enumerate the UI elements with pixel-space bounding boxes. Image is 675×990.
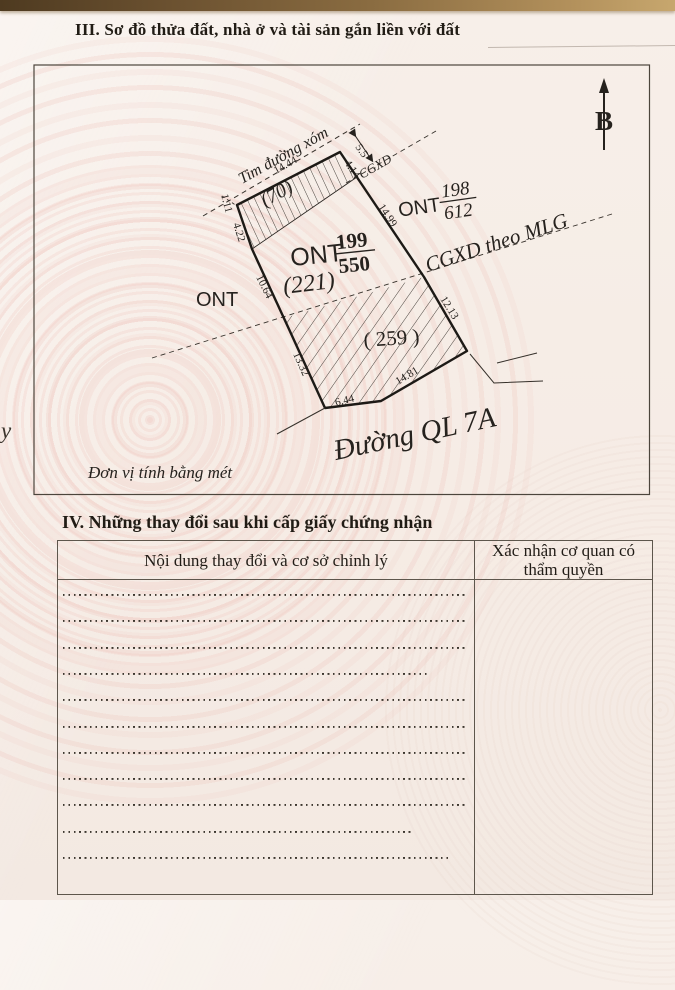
meas-corner: 1.11 (218, 193, 234, 214)
dotted-line (63, 730, 468, 756)
dotted-line (63, 757, 468, 783)
area-259-label: ( 259 ) (363, 324, 421, 352)
meas-right-upper: 14.99 (376, 202, 400, 230)
main-parcel-note: (221) (282, 268, 337, 300)
road-name-label: Đường QL 7A (330, 401, 499, 467)
page-edge-line (488, 45, 675, 48)
photo-desk-edge (0, 0, 675, 11)
dotted-line (63, 678, 468, 704)
dotted-line (63, 809, 411, 835)
dotted-line (63, 625, 468, 651)
col2-header: Xác nhận cơ quan có thẩm quyền (475, 541, 652, 580)
edge-cutoff-text: y (1, 418, 11, 444)
section-iv-title: IV. Những thay đổi sau khi cấp giấy chứn… (62, 512, 602, 533)
unit-note: Đơn vị tính bằng mét (87, 463, 233, 482)
main-parcel-number: 199 (335, 227, 369, 254)
section-iii-title: III. Sơ đồ thửa đất, nhà ở và tài sản gắ… (75, 20, 615, 40)
north-arrow: B (595, 78, 613, 150)
dotted-line (63, 783, 468, 809)
neighbor-parcel-label: ONT 198 612 (395, 177, 479, 231)
neighbor-parcel-area: 612 (443, 200, 475, 225)
meas-left-mid: 10.64 (253, 273, 275, 301)
meas-setback: 5.5 (353, 142, 371, 161)
confirm-cell-empty (475, 580, 652, 894)
parcel-diagram: B 14.44 4.14 1.11 4.22 10.64 13.32 6.44 … (33, 64, 651, 496)
dotted-line (63, 704, 468, 730)
changes-table-col-confirm: Xác nhận cơ quan có thẩm quyền (475, 541, 652, 894)
dotted-line (63, 836, 448, 862)
main-parcel-area: 550 (337, 251, 371, 278)
diagram-frame (34, 65, 650, 495)
changes-table: Nội dung thay đổi và cơ sở chỉnh lý Xác … (57, 540, 653, 895)
dotted-line (63, 580, 468, 599)
col1-header: Nội dung thay đổi và cơ sở chỉnh lý (58, 541, 474, 580)
left-land-type-label: ONT (196, 289, 238, 311)
north-label: B (595, 106, 613, 136)
land-certificate-page: { "page": { "section3_title": "III. Sơ đ… (0, 0, 675, 900)
dotted-lines (58, 580, 474, 894)
dotted-line (63, 599, 468, 625)
changes-table-col-content: Nội dung thay đổi và cơ sở chỉnh lý (58, 541, 475, 894)
neighbor-land-type: ONT (397, 194, 442, 222)
dotted-line (63, 652, 428, 678)
